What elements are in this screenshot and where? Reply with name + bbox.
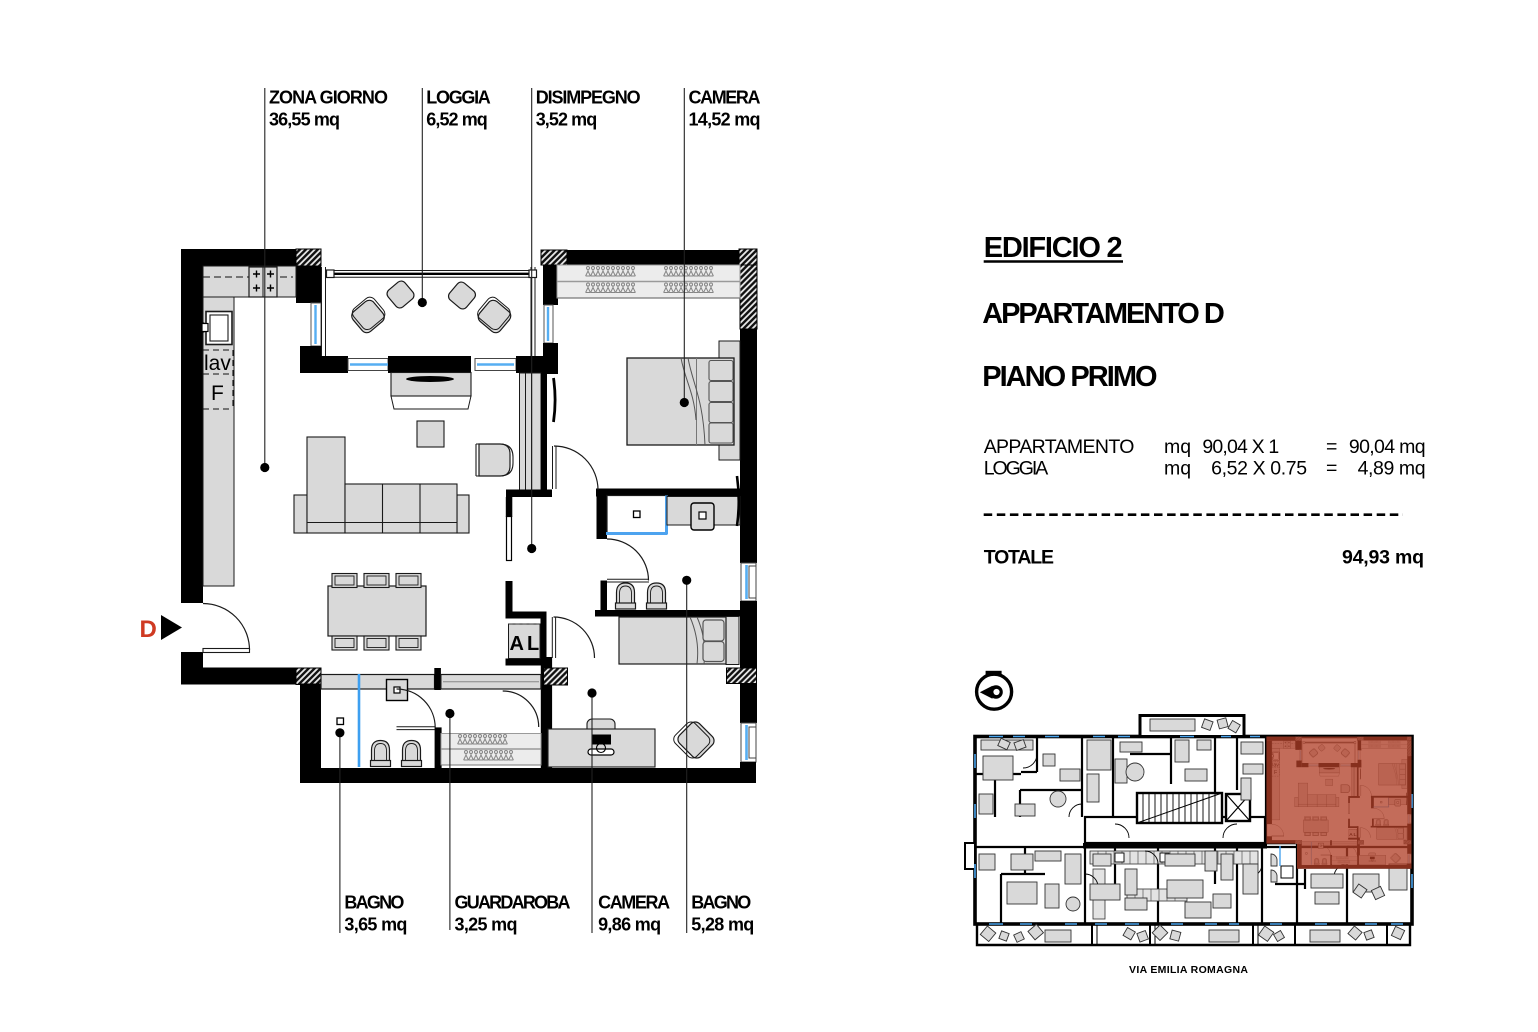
svg-text:4,89 mq: 4,89 mq: [1358, 458, 1426, 480]
svg-text:BAGNO: BAGNO: [344, 892, 404, 912]
svg-text:D: D: [140, 616, 157, 643]
svg-text:3,65 mq: 3,65 mq: [344, 914, 407, 934]
svg-text:A: A: [510, 633, 524, 655]
svg-text:LOGGIA: LOGGIA: [984, 458, 1049, 480]
svg-text:3,25 mq: 3,25 mq: [455, 914, 518, 934]
svg-text:L: L: [527, 633, 539, 655]
svg-text:lav: lav: [204, 352, 231, 375]
svg-text:DISIMPEGNO: DISIMPEGNO: [536, 88, 641, 108]
svg-text:6,52 X 0.75: 6,52 X 0.75: [1211, 458, 1307, 480]
svg-text:TOTALE: TOTALE: [984, 547, 1054, 569]
svg-text:EDIFICIO 2: EDIFICIO 2: [984, 232, 1123, 264]
svg-text:APPARTAMENTO D: APPARTAMENTO D: [982, 298, 1225, 330]
svg-text:6,52 mq: 6,52 mq: [426, 110, 488, 130]
svg-text:mq: mq: [1164, 436, 1191, 458]
svg-text:=: =: [1326, 458, 1337, 480]
svg-text:BAGNO: BAGNO: [691, 892, 751, 912]
svg-text:=: =: [1326, 436, 1337, 458]
svg-text:36,55 mq: 36,55 mq: [269, 110, 340, 130]
svg-text:F: F: [211, 382, 224, 405]
svg-text:90,04 X 1: 90,04 X 1: [1202, 436, 1279, 458]
svg-text:mq: mq: [1164, 458, 1191, 480]
svg-text:GUARDAROBA: GUARDAROBA: [455, 892, 571, 912]
svg-text:3,52 mq: 3,52 mq: [536, 110, 598, 130]
svg-text:5,28 mq: 5,28 mq: [691, 914, 754, 934]
svg-text:ZONA GIORNO: ZONA GIORNO: [269, 88, 388, 108]
svg-text:CAMERA: CAMERA: [689, 88, 761, 108]
svg-text:LOGGIA: LOGGIA: [426, 88, 491, 108]
svg-text:9,86 mq: 9,86 mq: [598, 914, 661, 934]
svg-text:PIANO PRIMO: PIANO PRIMO: [982, 361, 1157, 393]
svg-text:CAMERA: CAMERA: [598, 892, 670, 912]
svg-text:90,04 mq: 90,04 mq: [1349, 436, 1426, 458]
svg-text:APPARTAMENTO: APPARTAMENTO: [984, 436, 1135, 458]
svg-text:14,52 mq: 14,52 mq: [689, 110, 761, 130]
svg-text:VIA EMILIA ROMAGNA: VIA EMILIA ROMAGNA: [1129, 964, 1248, 976]
svg-text:94,93 mq: 94,93 mq: [1342, 547, 1424, 569]
